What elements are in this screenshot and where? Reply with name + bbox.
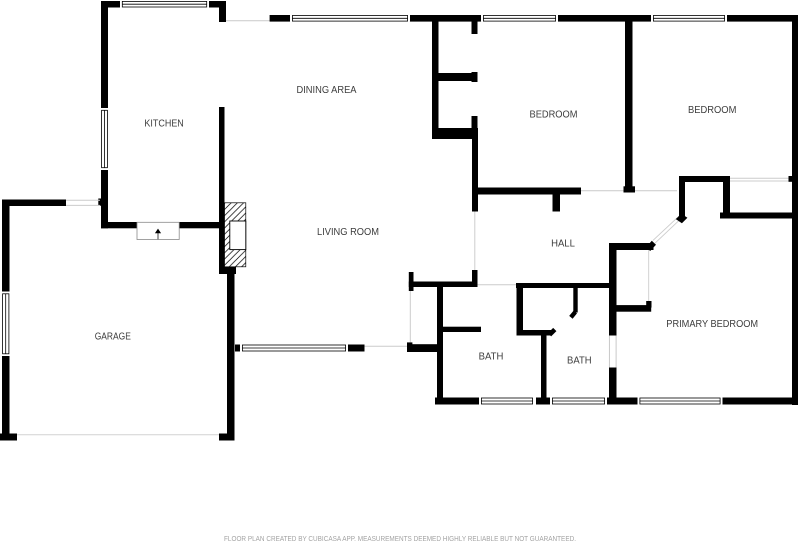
svg-text:DINING AREA: DINING AREA [297,85,357,96]
svg-text:PRIMARY BEDROOM: PRIMARY BEDROOM [666,319,758,330]
svg-text:KITCHEN: KITCHEN [144,118,183,129]
svg-text:LIVING ROOM: LIVING ROOM [317,227,379,238]
svg-text:BEDROOM: BEDROOM [688,105,736,116]
svg-text:BEDROOM: BEDROOM [530,110,578,121]
svg-text:HALL: HALL [551,238,575,249]
svg-text:GARAGE: GARAGE [95,331,131,342]
svg-text:BATH: BATH [479,352,504,363]
svg-text:BATH: BATH [567,355,592,366]
svg-text:FLOOR PLAN CREATED BY CUBICASA: FLOOR PLAN CREATED BY CUBICASA APP. MEAS… [224,536,576,543]
